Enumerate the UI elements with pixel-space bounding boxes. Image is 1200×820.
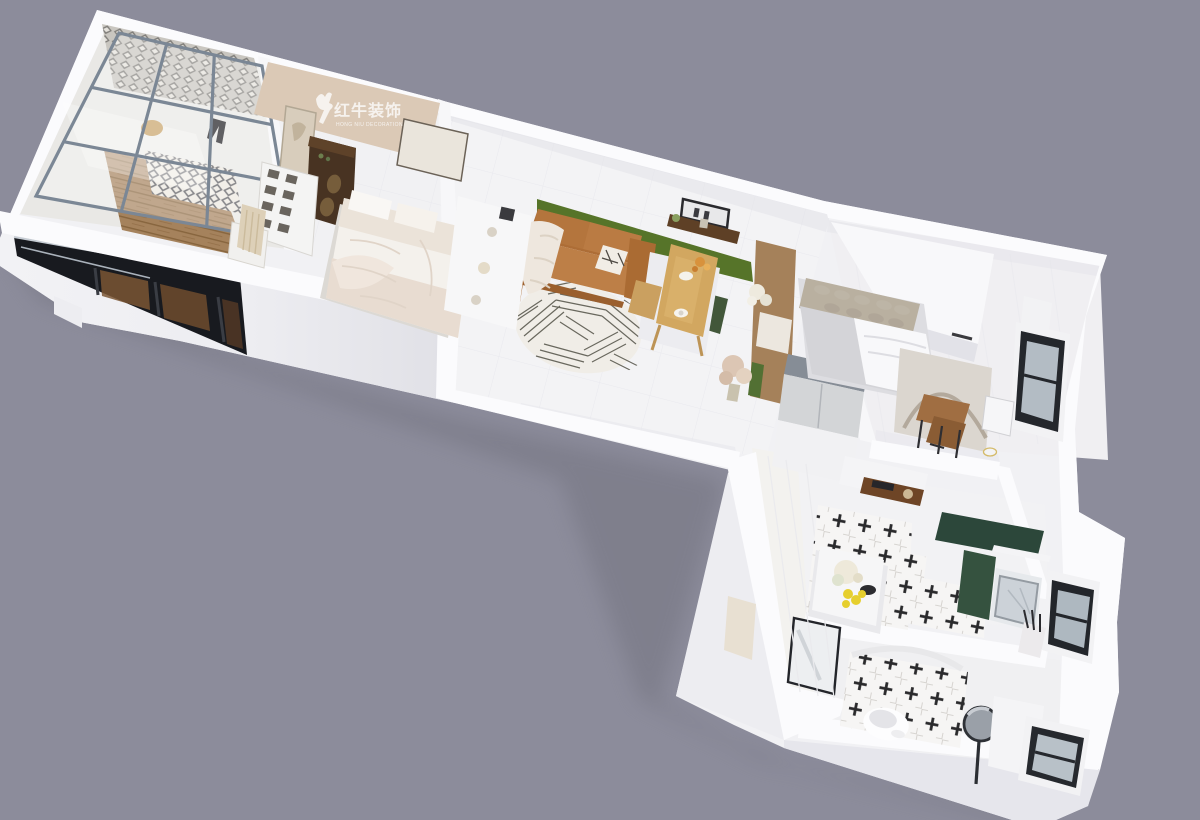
- svg-text:HONG NIU DECORATION: HONG NIU DECORATION: [336, 122, 403, 128]
- svg-text:红牛装饰: 红牛装饰: [334, 101, 402, 120]
